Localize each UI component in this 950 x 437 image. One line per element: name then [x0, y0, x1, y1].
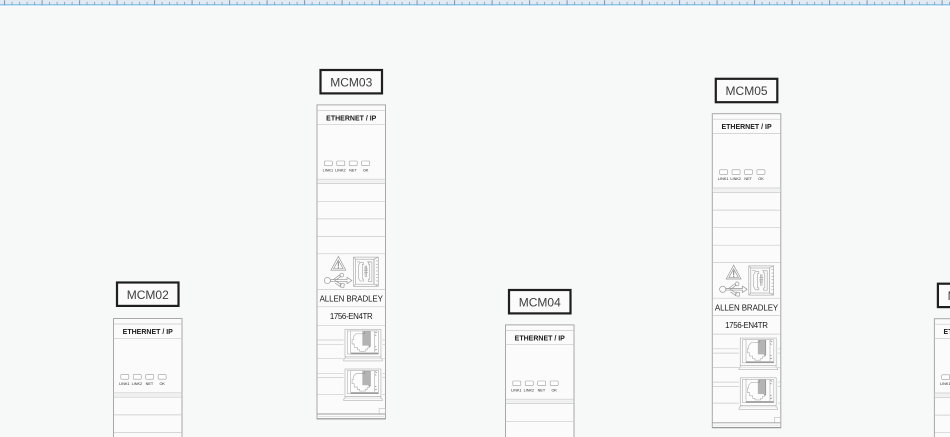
svg-text:MCM03: MCM03 [330, 75, 372, 89]
svg-text:MCM04: MCM04 [519, 295, 561, 309]
svg-text:MCM05: MCM05 [726, 84, 768, 98]
svg-text:MCM02: MCM02 [127, 288, 169, 302]
